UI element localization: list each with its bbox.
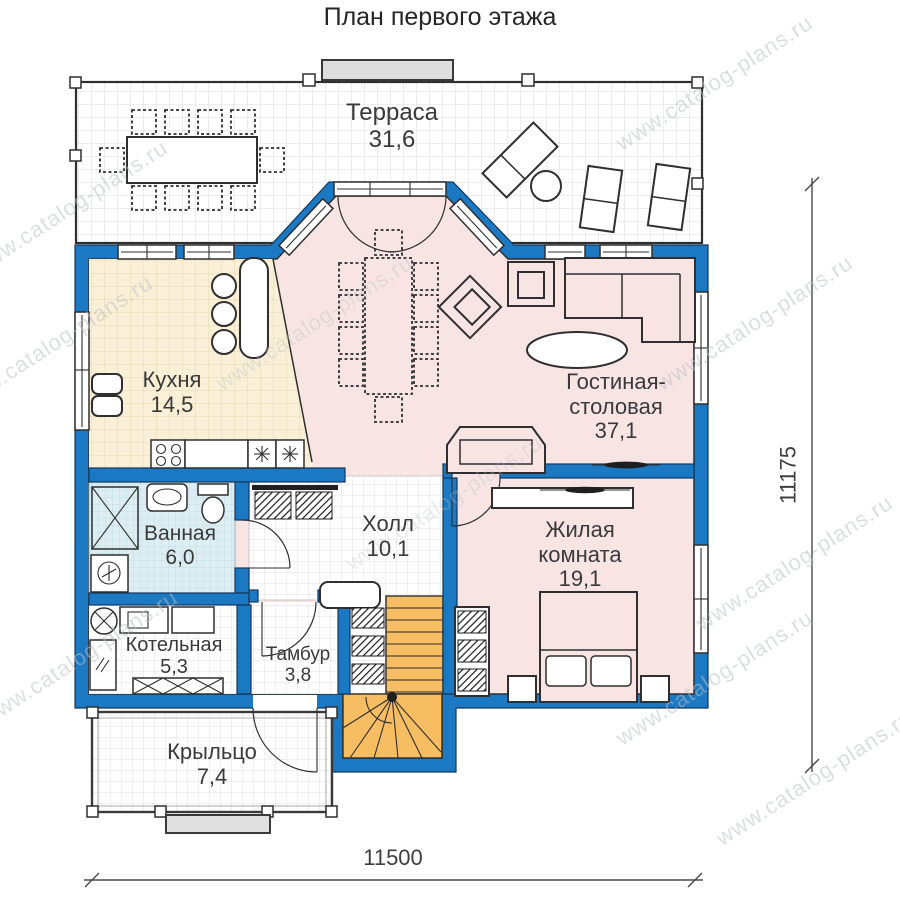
bay-window [334,182,446,196]
hall-bench [320,582,380,608]
shelf-tv [492,487,633,508]
room-label-boiler: Котельная 5,3 [126,634,223,679]
room-area: 14,5 [143,393,202,418]
closet-hangers [352,608,384,684]
stove [151,440,185,468]
window [75,312,89,430]
page-title: План первого этажа [324,3,557,32]
armchair [508,262,554,306]
room-label-bathroom: Ванная 6,0 [144,522,216,569]
floor-plan-drawing [0,0,900,900]
window [545,245,585,259]
boiler-equipment [133,678,223,694]
room-area: 19,1 [538,567,621,592]
terrace-round-table [531,171,561,201]
room-area: 7,4 [167,765,257,790]
window [694,292,708,404]
fireplace [447,427,545,473]
boiler-counter [120,607,214,633]
bar-stool [212,330,236,354]
room-area: 3,8 [266,665,331,686]
room-label-living-room: Жилая комната 19,1 [538,518,621,592]
washing-machine [91,555,128,592]
sun-lounger [580,166,622,232]
pillow [546,656,586,686]
bar-stool [212,302,236,326]
room-area: 31,6 [346,127,438,154]
bathroom-sink [147,484,187,511]
bar-stool [212,274,236,298]
coffee-table [527,332,627,368]
dimension-line-height [805,177,819,773]
sun-lounger [648,164,690,230]
nightstand [641,676,669,702]
dimension-width: 11500 [363,846,423,871]
kitchen-counter [185,440,248,468]
dimension-height: 11175 [777,446,802,504]
fridge-icon [248,440,276,468]
nightstand [508,676,536,702]
room-area: 5,3 [126,656,223,678]
room-area: 10,1 [362,537,414,562]
room-label-porch: Крыльцо 7,4 [167,740,257,789]
freezer-icon [276,440,304,468]
room-label-hall: Холл 10,1 [362,512,414,561]
wardrobe [455,607,489,696]
room-label-terrace: Терраса 31,6 [346,100,438,154]
room-label-tambour: Тамбур 3,8 [266,644,331,687]
stair-newel [387,692,397,702]
window [694,545,708,653]
chimney [322,60,453,80]
window [600,245,652,259]
porch-door-opening [253,695,317,709]
pillow [591,656,631,686]
floor-plan-canvas: www.catalog-plans.ru www.catalog-plans.r… [0,0,900,900]
room-label-living-dining: Гостиная- столовая 37,1 [566,370,666,444]
room-area: 6,0 [144,546,216,570]
window [184,245,234,259]
porch-steps [166,815,270,833]
dimension-line-width [84,873,703,887]
room-area: 37,1 [566,419,666,444]
window [118,245,176,259]
boiler-cabinet [90,640,116,690]
bed [540,592,637,702]
room-label-kitchen: Кухня 14,5 [143,368,202,417]
